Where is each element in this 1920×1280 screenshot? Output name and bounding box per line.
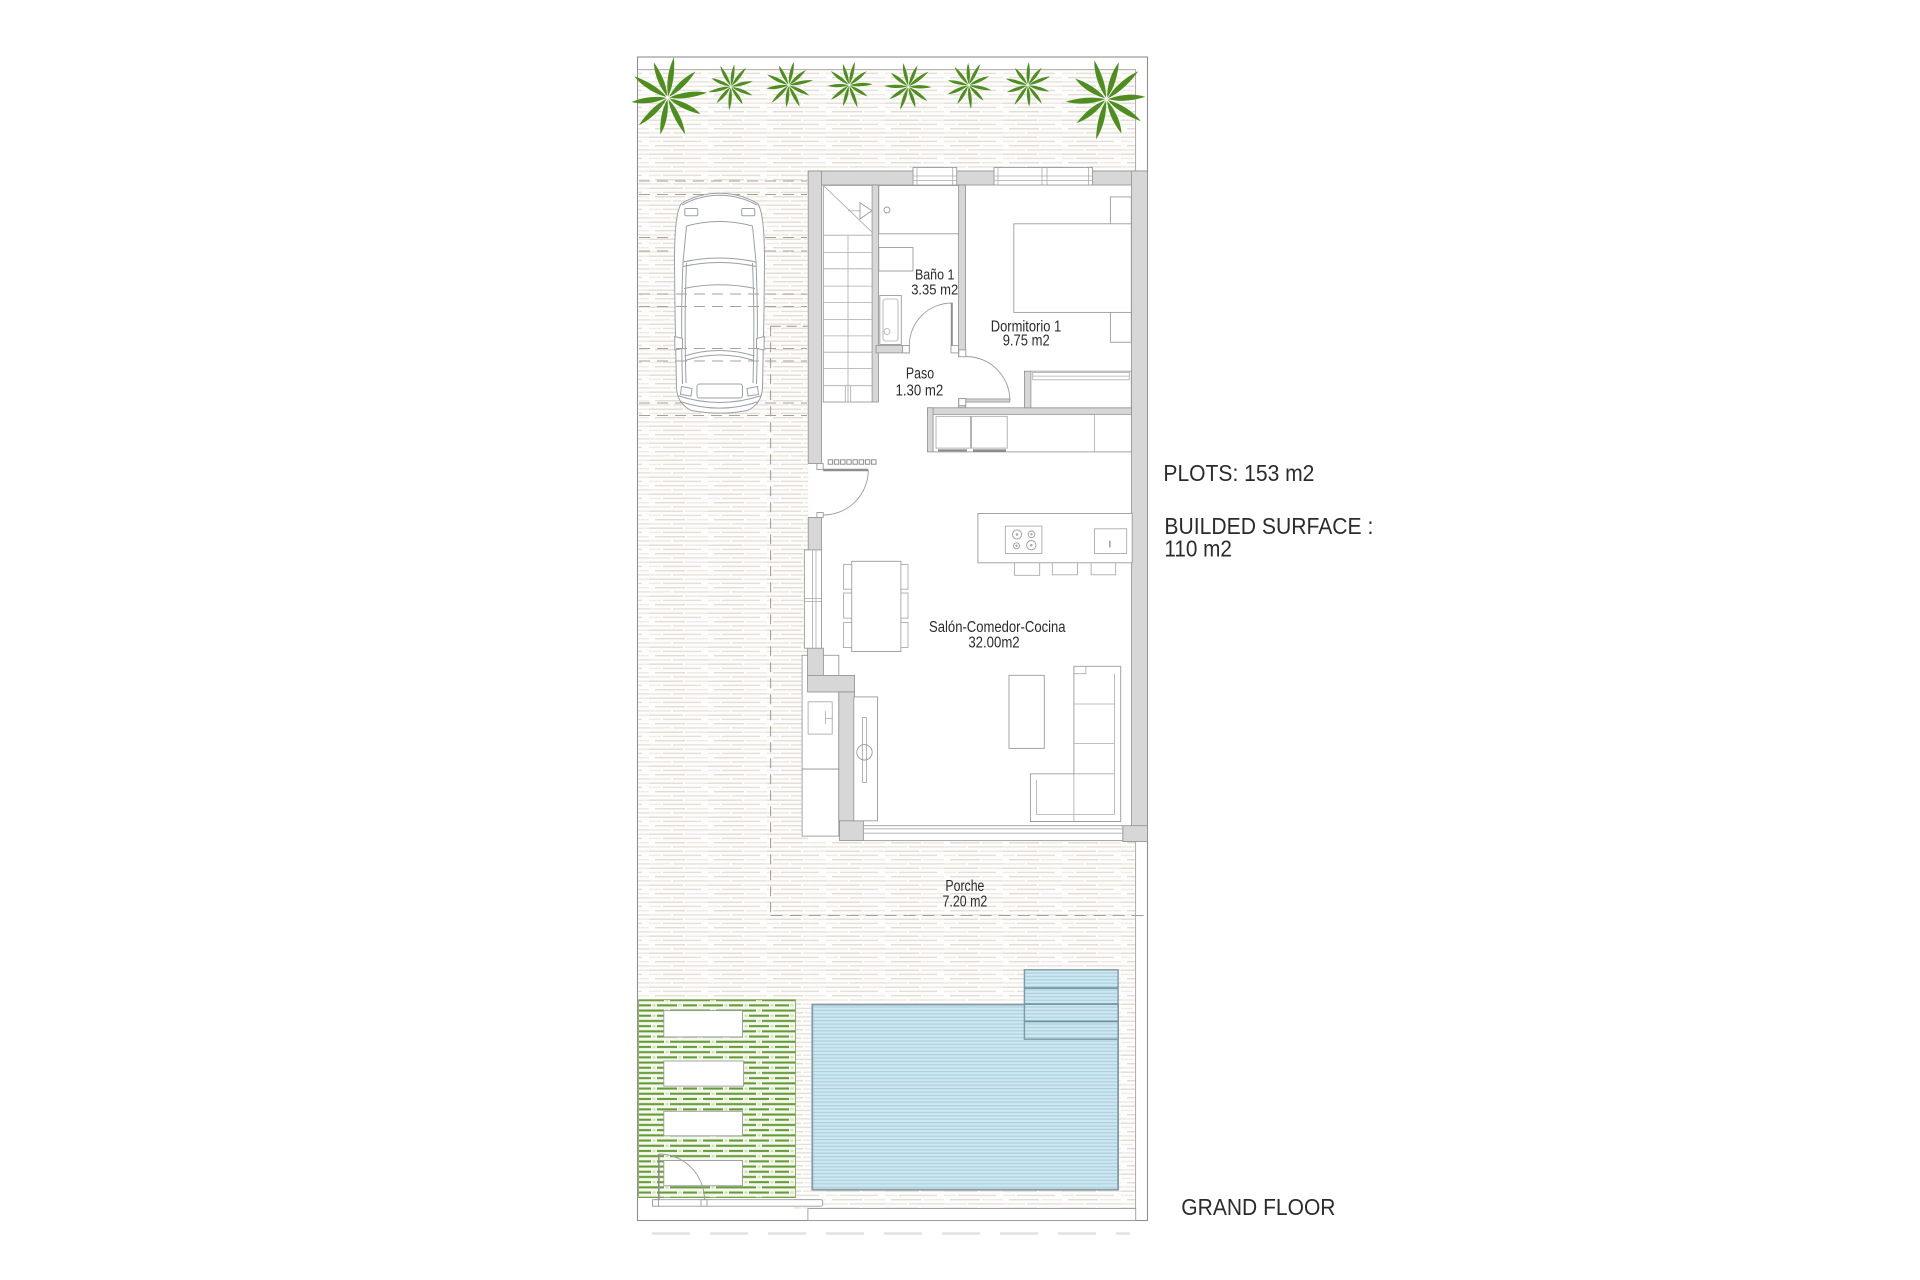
svg-text:110 m2: 110 m2 bbox=[1164, 536, 1232, 562]
svg-text:32.00m2: 32.00m2 bbox=[968, 634, 1019, 651]
svg-text:7.20 m2: 7.20 m2 bbox=[943, 894, 988, 911]
svg-text:PLOTS: 153 m2: PLOTS: 153 m2 bbox=[1163, 460, 1314, 486]
svg-text:GRAND FLOOR: GRAND FLOOR bbox=[1181, 1194, 1335, 1220]
svg-text:Paso: Paso bbox=[906, 365, 934, 382]
svg-text:1.30 m2: 1.30 m2 bbox=[896, 383, 944, 400]
svg-text:Porche: Porche bbox=[945, 878, 984, 895]
svg-text:3.35 m2: 3.35 m2 bbox=[911, 281, 958, 298]
svg-text:9.75 m2: 9.75 m2 bbox=[1003, 333, 1050, 350]
